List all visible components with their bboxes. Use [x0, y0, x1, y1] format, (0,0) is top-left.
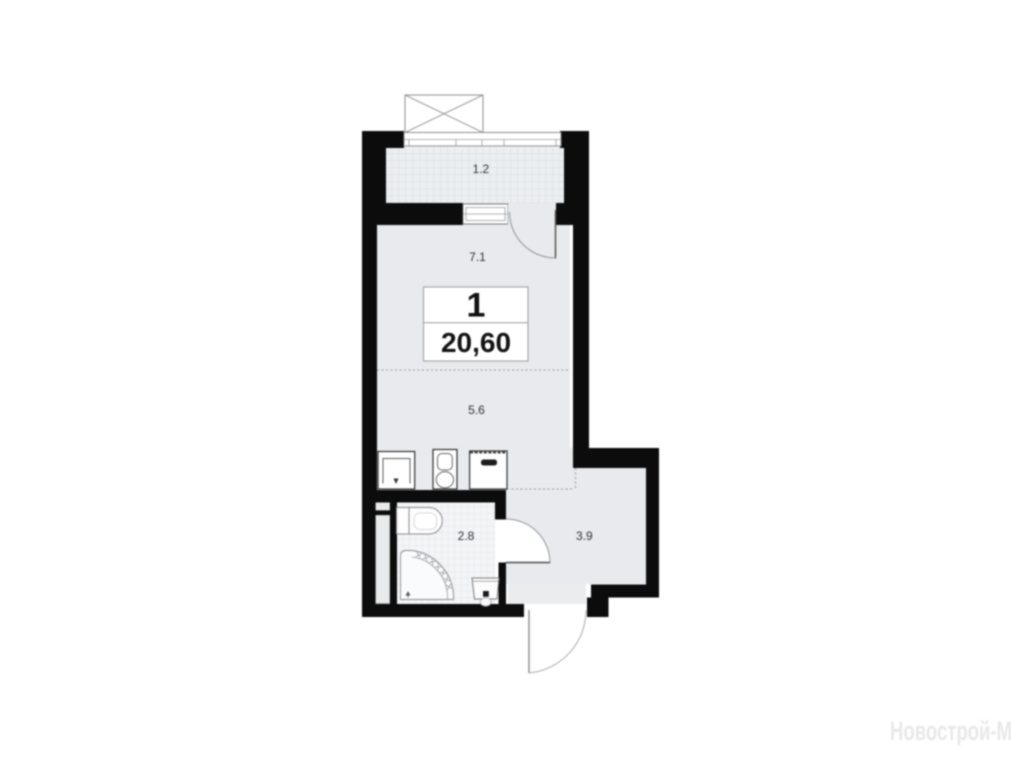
svg-text:7.1: 7.1	[469, 250, 486, 264]
svg-text:5.6: 5.6	[468, 403, 485, 417]
svg-text:3.9: 3.9	[576, 529, 593, 543]
svg-text:Новострой-М: Новострой-М	[890, 716, 1012, 746]
svg-text:20,60: 20,60	[441, 327, 511, 358]
svg-text:2.8: 2.8	[458, 529, 475, 543]
svg-text:1: 1	[467, 287, 486, 325]
svg-text:1.2: 1.2	[473, 162, 490, 176]
